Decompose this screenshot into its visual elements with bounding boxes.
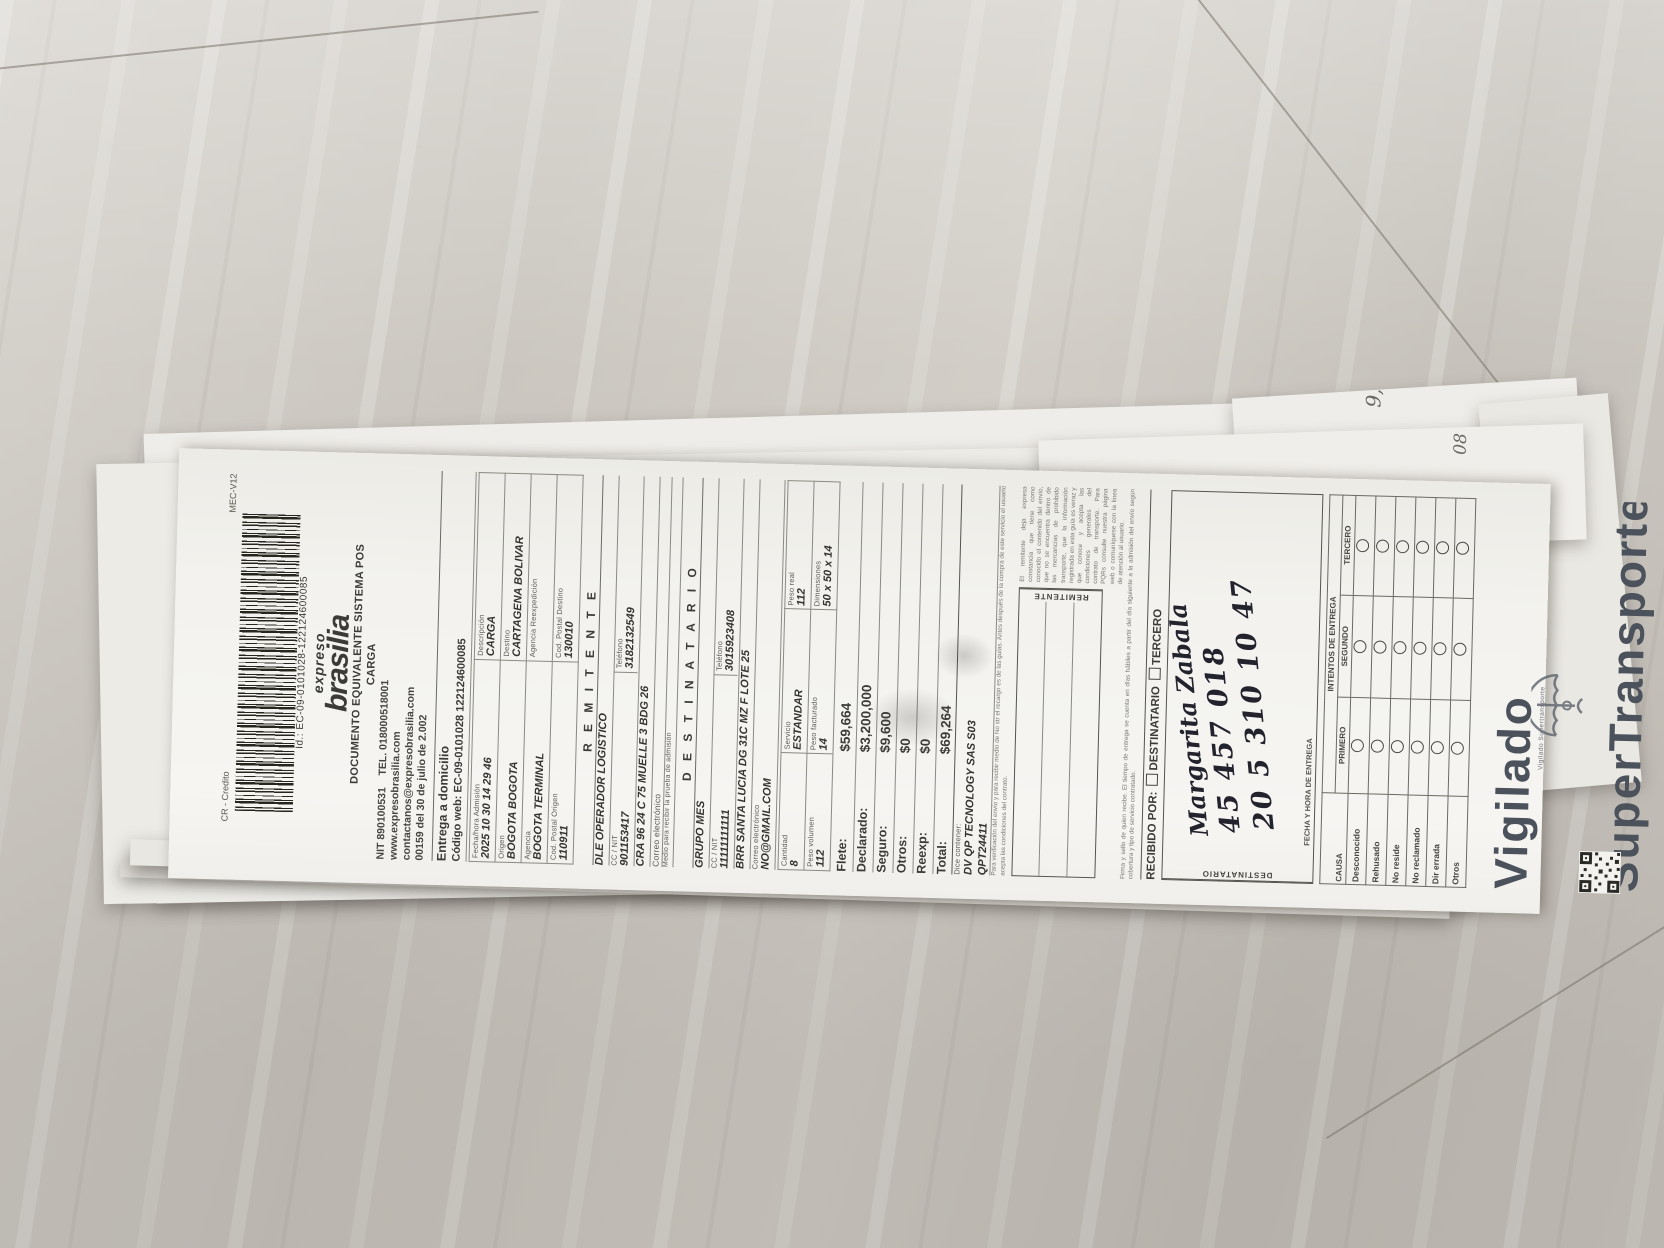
wood-seam (1190, 0, 1536, 432)
charges-block: Flete:$59,664 Declarado:$3,200,000 Segur… (834, 482, 963, 875)
attempt-bubble (1416, 540, 1429, 553)
delivery-attempts-table: CAUSA INTENTOS DE ENTREGA PRIMERO SEGUND… (1319, 494, 1476, 888)
attempt-bubble (1411, 741, 1424, 754)
attempt-bubble (1413, 642, 1426, 655)
attempt-bubble (1351, 739, 1364, 752)
attempt-bubble (1453, 643, 1466, 656)
attempt-bubble (1396, 540, 1409, 553)
checkbox-icon (1146, 773, 1158, 785)
attempt-bubble (1356, 539, 1369, 552)
checkbox-icon (1149, 668, 1161, 680)
attempt-bubble (1371, 740, 1384, 753)
attempt-bubble (1436, 541, 1449, 554)
sender-signature-box: REMITENTE (1011, 588, 1103, 879)
attempt-bubble (1376, 539, 1389, 552)
attempt-bubble (1373, 641, 1386, 654)
attempt-bubble (1433, 642, 1446, 655)
attempt-bubble (1431, 741, 1444, 754)
qr-code (1578, 851, 1621, 894)
attempt-bubble (1456, 541, 1469, 554)
shipment-measures-table: Cantidad8 ServicioESTANDAR Peso real112 … (777, 480, 840, 871)
desk-photo: 9, 08 lo y expedido por sistema FivePost… (0, 0, 1664, 1248)
terminal-code-label: MEC-V12 (228, 473, 240, 512)
causa-header: CAUSA (1319, 793, 1347, 885)
attempt-bubble (1451, 742, 1464, 755)
pen-mark: 08 (1450, 433, 1471, 455)
delivery-datetime-label: FECHA Y HORA DE ENTREGA (1303, 738, 1315, 846)
supertransporte-word: SuperTransporte (1593, 501, 1661, 892)
wood-seam (0, 11, 539, 72)
receiver-signature-box: DESTINATARIO Margarita Zabala 45 457 018… (1161, 490, 1323, 884)
waybill-document: CR - Credito MEC-V12 Id.: EC-09-0101028-… (168, 448, 1551, 914)
vigilado-small-text: Vigilado Supertransporte (1537, 686, 1547, 770)
sender-signature-row: REMITENTE El remitente deja expresa cons… (1011, 486, 1127, 879)
company-tel: TEL. 018000518001 (377, 680, 392, 776)
wood-seam (1326, 883, 1664, 1139)
vigilado-block: Vigilado Vigilado Supertransporte SuperT… (1482, 499, 1664, 894)
handwritten-signature: Margarita Zabala 45 457 018 20 5 310 10 … (1161, 576, 1282, 838)
admission-info-table: Fecha/hora Admisión2025 10 30 14 29 46 D… (468, 472, 584, 865)
fine-print-side: El remitente deja expresa constancia que… (1019, 486, 1128, 584)
payment-type-label: CR - Credito (220, 771, 233, 821)
checkbox-destinatario: DESTINATARIO (1146, 686, 1164, 786)
barcode (235, 511, 301, 812)
pen-mark: 9, (1361, 388, 1386, 408)
attempt-bubble (1391, 740, 1404, 753)
attempt-bubble (1353, 640, 1366, 653)
attempt-bubble (1393, 641, 1406, 654)
